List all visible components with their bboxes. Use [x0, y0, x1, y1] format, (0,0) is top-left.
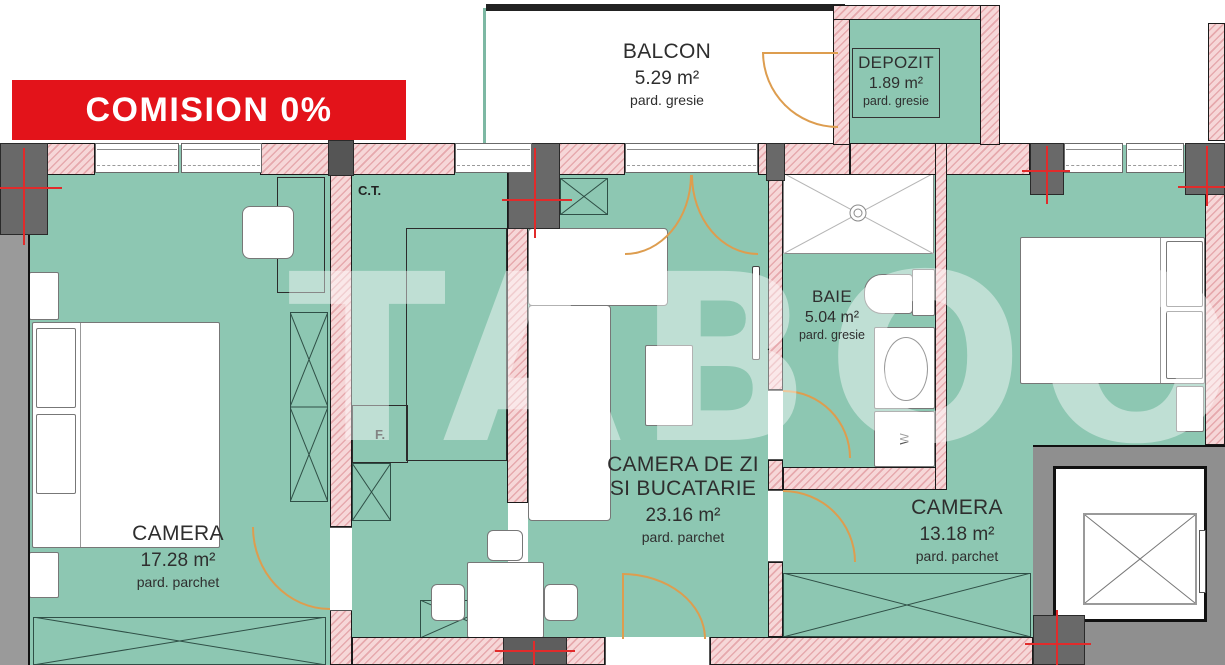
chair: [544, 584, 578, 621]
sink-basin-icon: [884, 337, 928, 401]
wardrobe-icon: [290, 312, 328, 502]
boiler-label: C.T.: [358, 183, 381, 198]
pillow: [36, 328, 76, 408]
window: [1064, 143, 1123, 173]
room-area: 23.16 m²: [578, 505, 788, 527]
balcony-door-opening: [625, 143, 758, 173]
shower-tray-icon: [783, 173, 934, 254]
room-floor: pard. parchet: [578, 529, 788, 545]
section-marker: [495, 650, 575, 652]
room-name: DEPOZIT: [853, 53, 939, 73]
wall: [352, 143, 455, 175]
section-marker: [1206, 146, 1208, 206]
pillar: [1033, 615, 1085, 665]
label-depozit: DEPOZIT 1.89 m² pard. gresie: [852, 48, 940, 118]
window: [455, 143, 532, 173]
bed-left-fold-line: [80, 323, 81, 547]
section-marker: [1025, 643, 1091, 645]
elevator-icon: [1083, 513, 1197, 605]
section-marker: [0, 187, 62, 189]
room-area: 17.28 m²: [78, 550, 278, 572]
window: [181, 143, 262, 173]
commission-badge: COMISION 0%: [12, 80, 406, 140]
wall-depozit: [833, 5, 1000, 20]
wall: [330, 143, 352, 527]
room-area: 1.89 m²: [853, 75, 939, 93]
washing-machine: W: [874, 411, 935, 467]
room-name: CAMERA: [868, 496, 1046, 520]
wall: [783, 467, 947, 490]
wall: [330, 610, 352, 665]
armchair: [242, 206, 294, 259]
section-marker: [533, 641, 535, 665]
door-opening: [768, 390, 783, 460]
label-baie: BAIE 5.04 m² pard. gresie: [762, 287, 902, 342]
nightstand: [29, 552, 59, 598]
pillow: [36, 414, 76, 494]
balcony-railing-left: [483, 8, 486, 143]
section-marker: [1056, 610, 1058, 665]
door-opening: [330, 527, 352, 611]
section-marker: [534, 148, 536, 238]
wall: [768, 562, 783, 637]
pillar: [766, 143, 785, 181]
room-name: BAIE: [762, 287, 902, 307]
cabinet-icon: [560, 178, 608, 215]
fridge: F.: [352, 405, 408, 463]
wall-depozit: [980, 5, 1000, 145]
wardrobe-icon: [33, 617, 326, 665]
room-floor: pard. gresie: [762, 328, 902, 342]
room-area: 13.18 m²: [868, 524, 1046, 546]
fridge-label: F.: [375, 427, 385, 442]
window: [95, 143, 179, 173]
entrance-opening: [605, 637, 710, 665]
wardrobe-icon: [783, 573, 1031, 637]
room-name: BALCON: [587, 40, 747, 64]
room-area: 5.29 m²: [587, 68, 747, 90]
section-marker: [1046, 146, 1048, 204]
nightstand: [1176, 386, 1204, 432]
window: [1126, 143, 1184, 173]
pillow: [1166, 311, 1203, 379]
room-floor: pard. gresie: [587, 92, 747, 108]
wall: [710, 637, 1033, 665]
room-area: 5.04 m²: [762, 309, 902, 327]
room-name-line1: CAMERA DE ZI: [578, 453, 788, 477]
label-balcon: BALCON 5.29 m² pard. gresie: [587, 40, 747, 108]
wall: [1208, 23, 1225, 141]
chair: [487, 530, 523, 561]
section-marker: [1178, 186, 1225, 188]
chair: [431, 584, 465, 621]
room-floor: pard. parchet: [78, 574, 278, 590]
washer-label: W: [897, 433, 911, 444]
section-marker: [502, 199, 572, 201]
floor-plan: F. W: [0, 0, 1225, 665]
label-camera2: CAMERA 13.18 m² pard. parchet: [868, 496, 1046, 564]
label-living: CAMERA DE ZI SI BUCATARIE 23.16 m² pard.…: [578, 453, 788, 545]
room-name-line2: SI BUCATARIE: [578, 477, 788, 501]
wall: [260, 143, 330, 175]
bed-right-fold-line: [1160, 238, 1161, 383]
section-marker: [23, 148, 25, 245]
tv: [752, 266, 760, 360]
appliance-icon: [352, 463, 391, 521]
room-floor: pard. parchet: [868, 548, 1046, 564]
wall: [935, 143, 947, 490]
toilet-tank: [912, 269, 935, 316]
nightstand: [29, 272, 59, 320]
pillow: [1166, 241, 1203, 307]
room-floor: pard. gresie: [853, 94, 939, 108]
coffee-table: [645, 345, 693, 426]
label-camera1: CAMERA 17.28 m² pard. parchet: [78, 522, 278, 590]
pillar: [328, 140, 354, 176]
room-name: CAMERA: [78, 522, 278, 546]
elevator-door: [1199, 530, 1206, 593]
kitchen-counter: [406, 228, 507, 461]
balcony-railing-top: [486, 4, 845, 11]
dining-table: [467, 562, 544, 638]
